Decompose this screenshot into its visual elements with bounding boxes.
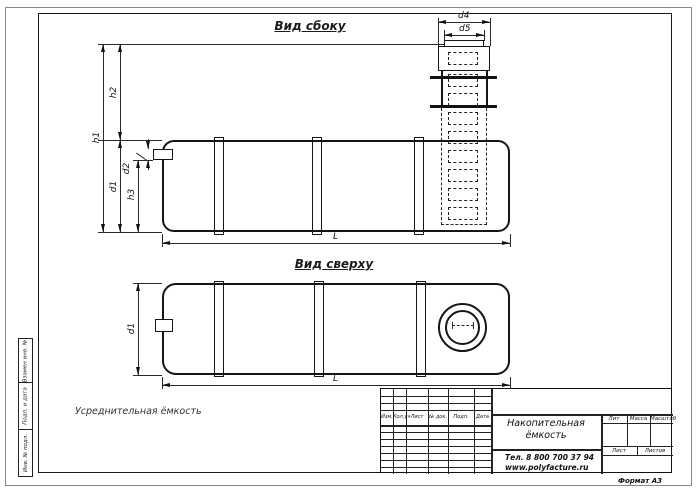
dim-line-h3 [138,160,139,232]
tb-col-data: Дата [474,414,491,420]
strap-band [214,137,224,235]
tb-hline [381,460,491,461]
corrugation-segment [448,150,478,163]
tb-col-podp: Подп. [448,414,474,420]
tb-hline [381,410,491,411]
neck-hidden-wall-right [486,108,487,225]
corrugation-segment [448,112,478,125]
ext-line-d1-top [133,375,162,376]
dim-label-h3: h3 [128,189,137,200]
strap-band [414,137,424,235]
corrugation-segment [448,188,478,201]
dim-line-d1-top [138,283,139,375]
dim-arrow [502,241,510,245]
tb-hline [381,453,491,454]
product-title-line1: Накопительная [493,418,599,430]
tb-hline [381,446,491,447]
dim-line-h1 [103,44,104,232]
contact-block: Тел. 8 800 700 37 94 www.polyfacture.ru [505,453,594,472]
product-title-line2: ёмкость [493,430,599,442]
side-nozzle [153,149,173,160]
dim-arrow [136,224,140,232]
margin-stamp-label: Взамен инв. № [23,339,29,382]
margin-stamp-inv: Инв. № подл. [19,429,32,476]
tb-hline [381,467,491,468]
website-url[interactable]: www.polyfacture.ru [505,463,594,473]
dim-arrow [444,33,452,37]
product-title: Накопительная ёмкость [493,418,599,442]
dim-arrow [118,44,122,52]
tb-hline [381,396,491,397]
ext-line-tank-bottom [98,232,162,233]
neck-flange [430,76,497,79]
dim-label-L-side: L [333,233,338,242]
dim-arrow [502,383,510,387]
dim-arrow [482,20,490,24]
dim-arrow [101,224,105,232]
ext-line-top [98,44,444,45]
margin-stamp-vzamen: Взамен инв. № [19,339,32,383]
margin-stamp-column: Взамен инв. № Подп. и дата Инв. № подл. [18,338,33,477]
tb-hline [601,423,673,424]
dim-label-d5: d5 [459,25,470,34]
neck-cap-hidden-edge [448,52,478,65]
manhole-center-tick [473,322,474,329]
dim-label-h2: h2 [110,87,119,98]
margin-stamp-label: Инв. № подл. [23,434,29,472]
dim-arrow [162,241,170,245]
strap-band [312,137,322,235]
tb-col-izm: Изм. [381,414,393,420]
phone-number: Тел. 8 800 700 37 94 [505,453,594,463]
drawing-note: Усреднительная ёмкость [75,406,202,417]
dim-arrow [136,283,140,291]
neck-corrugation [448,74,478,226]
tb-hline [381,439,491,440]
dim-arrow [476,33,484,37]
strap-band [214,281,224,377]
dim-arrow [118,132,122,140]
dim-label-d1-top: d1 [128,323,137,334]
top-nozzle [155,319,173,332]
dim-arrow [118,140,122,148]
margin-stamp-label: Подп. и дата [23,387,29,424]
neck-hidden-wall-left [441,108,442,225]
side-view-title: Вид сбоку [250,19,370,33]
tb-hline [381,432,491,433]
dim-arrow [146,160,150,168]
neck-flange [430,105,497,108]
manhole-center-mark [452,325,474,326]
sheets-label: Листов [637,448,673,454]
tb-hline [381,403,491,404]
manhole-center-tick [452,322,453,329]
mass-label: Масса [627,416,650,422]
tb-col-koluch: Кол.уч [393,414,406,420]
dim-arrow [438,20,446,24]
corrugation-segment [448,169,478,182]
ext-line-d4 [490,18,491,46]
corrugation-segment [448,207,478,220]
dim-label-L-top: L [333,375,338,384]
corrugation-segment [448,131,478,144]
strap-band [314,281,324,377]
margin-stamp-podp: Подп. и дата [19,382,32,430]
tb-hline [601,455,673,456]
dim-arrow [118,224,122,232]
manhole-inner-circle [445,310,480,345]
drawing-sheet: Вид сбоку h1 h2 d1 h3 [0,0,699,493]
dim-label-h1: h1 [93,132,102,143]
ext-line-d5 [484,30,485,41]
dim-arrow [162,383,170,387]
dim-line-L-side [162,243,510,244]
dim-label-d1: d1 [110,181,119,192]
ext-line-tank-top [98,140,162,141]
dim-arrow [136,367,140,375]
top-view-title: Вид сверху [274,257,394,271]
sheet-label: Лист [601,448,637,454]
ext-line-L [510,234,511,247]
tb-hline [381,425,491,427]
dim-arrow [146,141,150,149]
dim-label-d4: d4 [458,12,469,21]
tb-col-list: Лист [406,414,428,420]
format-label: Формат А3 [605,477,675,485]
dim-arrow [101,44,105,52]
title-block: Изм. Кол.уч Лист № док. Подп. Дата Накоп… [380,388,672,473]
lit-label: Лит [601,416,627,422]
dim-label-d2: d2 [123,163,132,174]
tb-hline [491,449,601,451]
dim-arrow [136,160,140,168]
tb-col-ndok: № док. [428,414,448,420]
strap-band [416,281,426,377]
scale-label: Масштаб [650,416,673,422]
dim-line-L-top [162,385,510,386]
